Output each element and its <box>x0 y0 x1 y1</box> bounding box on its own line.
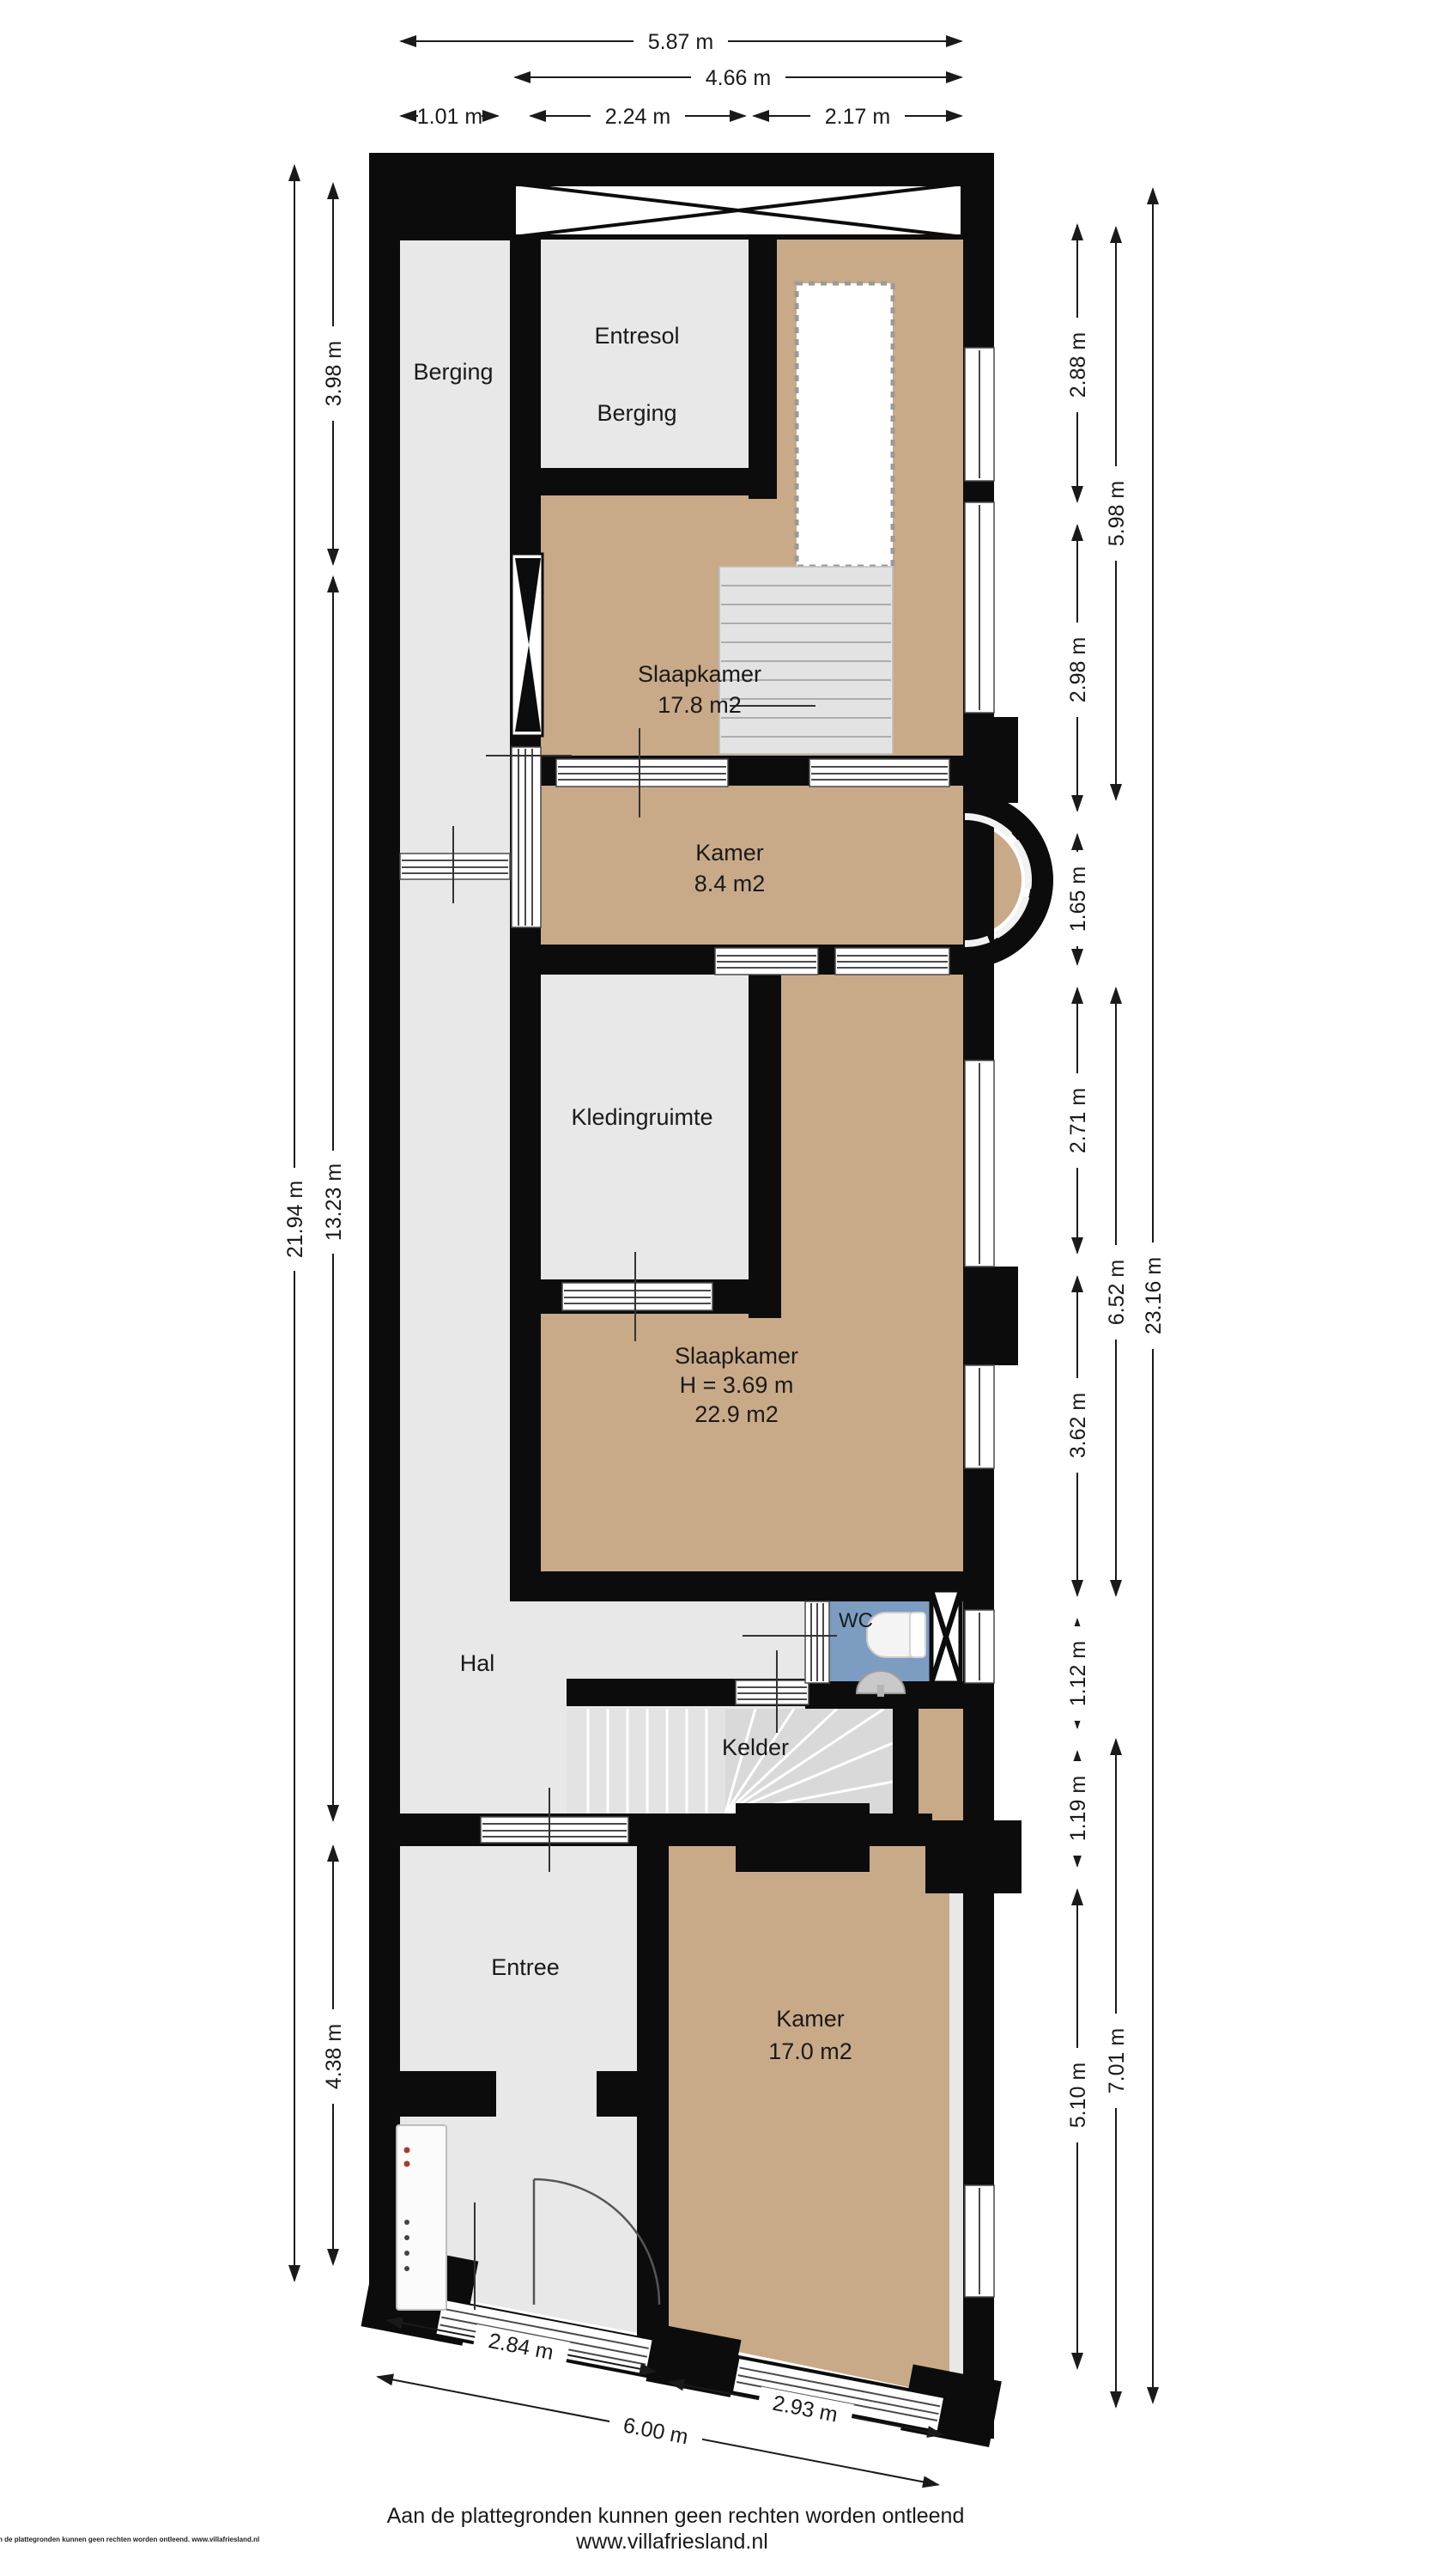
room-label-entresol-1: Entresol <box>594 323 679 349</box>
stairs-kelder <box>567 1709 893 1814</box>
room-label-hal: Hal <box>460 1650 495 1676</box>
dim-right-2-98: 2.98 m <box>1064 526 1091 811</box>
dim-right-1-65: 1.65 m <box>1064 835 1091 964</box>
room-label-slaapkamer1-name: Slaapkamer <box>638 661 761 687</box>
footer-website: www.villafriesland.nl <box>575 2530 768 2554</box>
dim-label: 21.94 m <box>283 1181 307 1258</box>
kamer1-bottom-window-right <box>835 948 949 975</box>
dim-top-4-66: 4.66 m <box>515 64 961 90</box>
room-label-kledingruimte: Kledingruimte <box>571 1104 712 1130</box>
room-slaapkamer2-upper-floor <box>781 975 965 1314</box>
room-kamer2-floor <box>669 1846 949 2396</box>
dim-top-2-17: 2.17 m <box>754 103 961 129</box>
dim-right-2-88: 2.88 m <box>1064 225 1091 501</box>
room-label-kamer1-area: 8.4 m2 <box>694 871 766 896</box>
dim-label: 2.71 m <box>1066 1088 1090 1153</box>
meter-cabinet <box>397 2125 446 2310</box>
dim-label: 5.98 m <box>1105 481 1129 546</box>
dim-left-21-94: 21.94 m <box>281 166 308 2281</box>
dim-label: 23.16 m <box>1142 1257 1166 1334</box>
dim-label: 1.12 m <box>1066 1641 1090 1706</box>
dim-label: 5.87 m <box>648 30 713 54</box>
dim-top-1-01: 1.01 m <box>401 103 498 129</box>
room-label-kelder: Kelder <box>722 1735 789 1760</box>
dim-label: 1.65 m <box>1066 866 1090 932</box>
dim-right-5-10: 5.10 m <box>1064 1890 1091 2368</box>
right-window-1 <box>965 348 994 481</box>
right-window-4 <box>965 1365 994 1468</box>
dim-label: 6.52 m <box>1105 1260 1129 1325</box>
dimensions-right: 2.88 m 2.98 m 1.65 m 2.71 m 3.62 m 1.12 <box>1064 189 1167 2407</box>
dimensions-left: 21.94 m 3.98 m 13.23 m 4.38 m <box>281 166 347 2281</box>
footer: Aan de plattegronden kunnen geen rechten… <box>0 2504 964 2554</box>
dim-label: 2.98 m <box>1066 637 1090 702</box>
dim-label: 1.01 m <box>417 105 482 129</box>
footer-disclaimer: Aan de plattegronden kunnen geen rechten… <box>387 2504 965 2528</box>
room-label-kamer1-name: Kamer <box>695 840 764 866</box>
room-label-berging-left: Berging <box>413 359 493 385</box>
room-label-slaapkamer1-area: 17.8 m2 <box>658 692 742 718</box>
dim-right-5-98: 5.98 m <box>1102 228 1130 799</box>
room-label-entresol-2: Berging <box>597 400 676 426</box>
dim-label: 7.01 m <box>1105 2028 1129 2093</box>
dim-right-2-71: 2.71 m <box>1064 988 1091 1253</box>
wc-x-panel <box>931 1590 961 1683</box>
dim-label: 5.10 m <box>1066 2063 1090 2128</box>
dim-right-23-16: 23.16 m <box>1139 189 1167 2403</box>
dim-right-1-12: 1.12 m <box>1064 1619 1091 1728</box>
dim-label: 3.62 m <box>1066 1393 1090 1458</box>
dim-right-1-19: 1.19 m <box>1064 1752 1091 1866</box>
room-label-slaapkamer2-height: H = 3.69 m <box>680 1372 794 1398</box>
room-label-entree: Entree <box>491 1954 560 1980</box>
room-label-wc: WC <box>839 1609 873 1632</box>
dim-left-4-38: 4.38 m <box>319 1846 347 2264</box>
dim-label: 3.98 m <box>322 341 346 406</box>
dim-left-3-98: 3.98 m <box>319 184 347 564</box>
dim-label: 13.23 m <box>322 1163 346 1241</box>
dim-right-6-52: 6.52 m <box>1102 988 1130 1595</box>
dimensions-top: 5.87 m 4.66 m 1.01 m 2.24 m 2.17 m <box>401 28 961 129</box>
dim-label: 1.19 m <box>1066 1776 1090 1841</box>
slaapkamer1-kamer1-window-right <box>809 759 949 787</box>
dim-left-13-23: 13.23 m <box>319 577 347 1820</box>
room-label-slaapkamer2-area: 22.9 m2 <box>694 1401 779 1427</box>
dim-label: 2.88 m <box>1066 332 1090 398</box>
dim-label: 2.24 m <box>605 105 670 129</box>
dim-label: 4.66 m <box>706 66 771 90</box>
skylight-x-window <box>513 184 963 237</box>
right-window-5 <box>965 1610 994 1683</box>
right-window-3 <box>965 1060 994 1267</box>
kamer1-bottom-window-left <box>715 948 818 975</box>
dim-label: 4.38 m <box>322 2024 346 2089</box>
floorplan-page: Berging Entresol Berging Slaapkamer 17.8… <box>0 0 1449 2576</box>
dim-right-3-62: 3.62 m <box>1064 1277 1091 1595</box>
dim-top-5-87: 5.87 m <box>401 28 961 54</box>
dim-top-2-24: 2.24 m <box>530 103 745 129</box>
right-window-6 <box>965 2185 994 2297</box>
dim-label: 6.00 m <box>621 2413 690 2449</box>
dim-label: 2.17 m <box>825 105 890 129</box>
corner-note: Aan de plattegronden kunnen geen rechten… <box>0 2536 259 2543</box>
right-window-2 <box>965 502 994 713</box>
dim-right-7-01: 7.01 m <box>1102 1740 1130 2407</box>
room-label-kamer2-name: Kamer <box>776 2006 845 2032</box>
room-label-kamer2-area: 17.0 m2 <box>768 2038 852 2064</box>
floorplan-drawing: Berging Entresol Berging Slaapkamer 17.8… <box>0 0 1449 2576</box>
room-label-slaapkamer2-name: Slaapkamer <box>675 1343 798 1369</box>
